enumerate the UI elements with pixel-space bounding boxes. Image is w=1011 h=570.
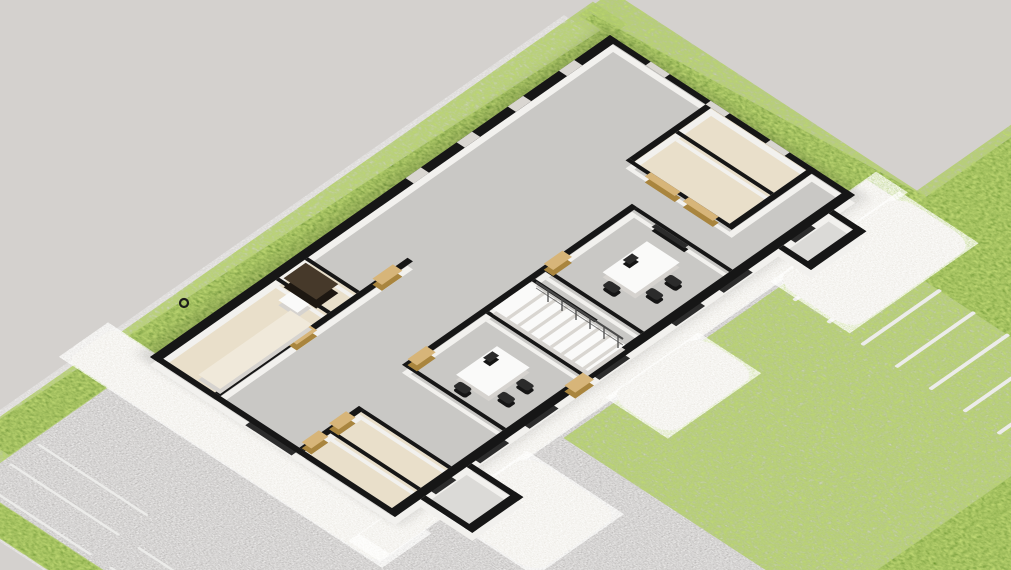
render-canvas[interactable]	[0, 0, 1011, 570]
ground-plane	[0, 0, 1011, 570]
floorplan-3d-viewport[interactable]	[0, 0, 1011, 570]
